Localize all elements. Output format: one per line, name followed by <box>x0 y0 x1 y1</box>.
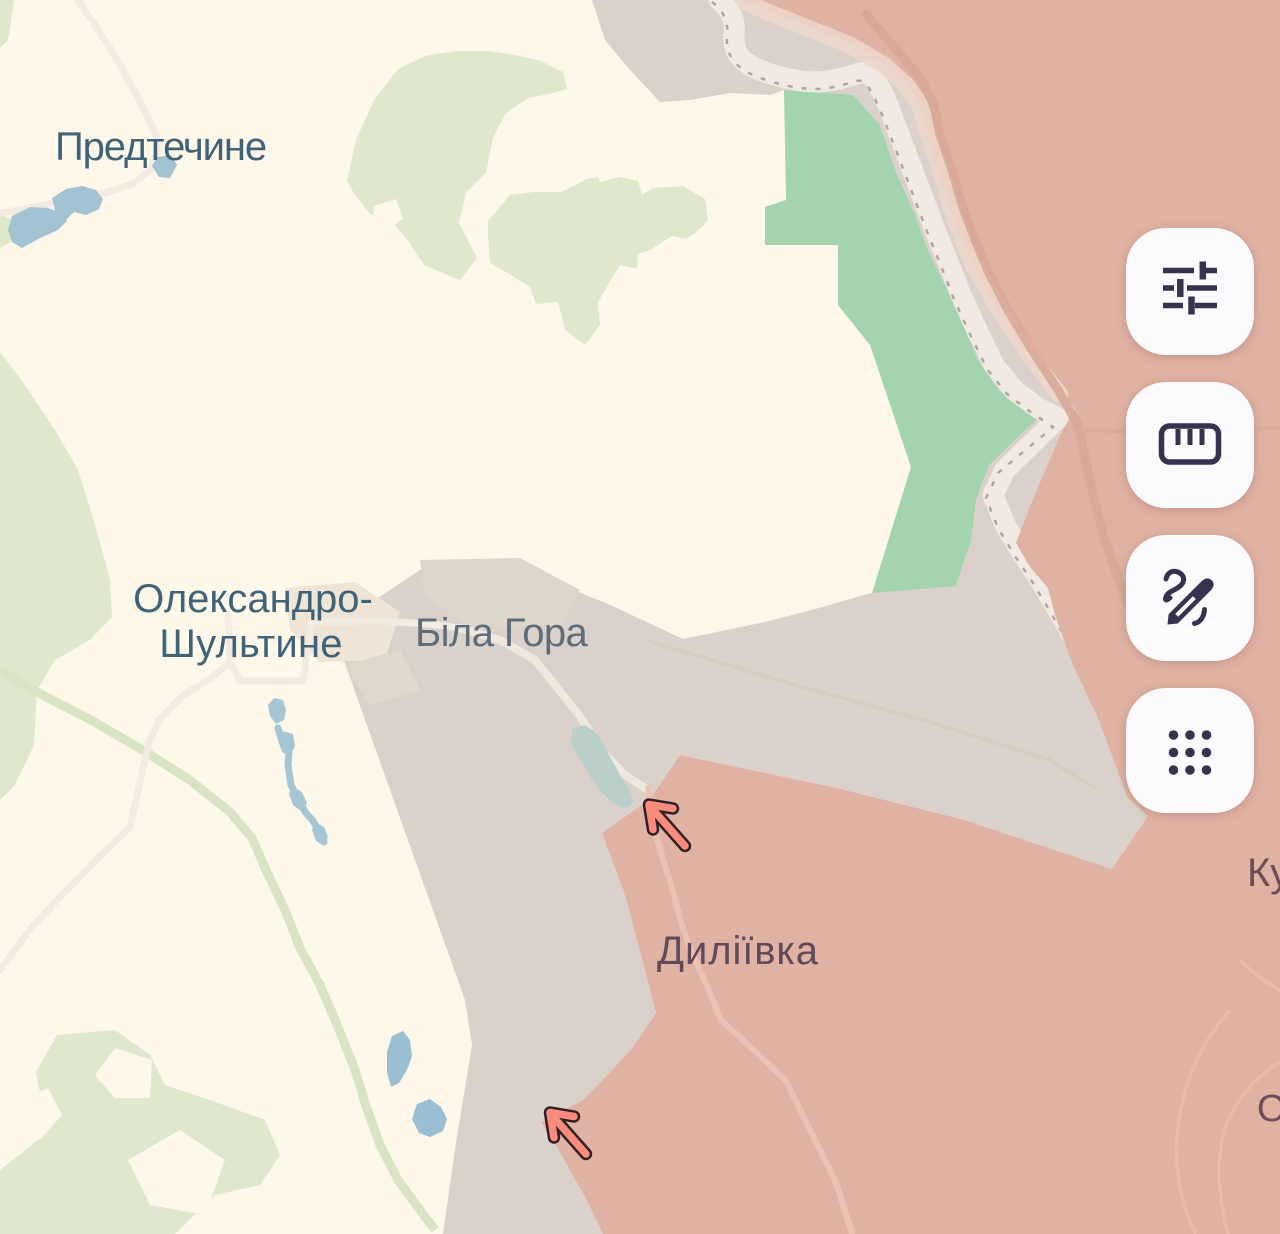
svg-text:О: О <box>1257 1088 1280 1130</box>
svg-text:Біла Гора: Біла Гора <box>415 611 589 655</box>
svg-text:Диліївка: Диліївка <box>657 929 819 973</box>
svg-text:Предтечине: Предтечине <box>55 125 266 169</box>
svg-text:Ку: Ку <box>1247 851 1280 895</box>
svg-text:Олександро-: Олександро- <box>133 577 373 621</box>
svg-text:Шультине: Шультине <box>159 622 342 666</box>
